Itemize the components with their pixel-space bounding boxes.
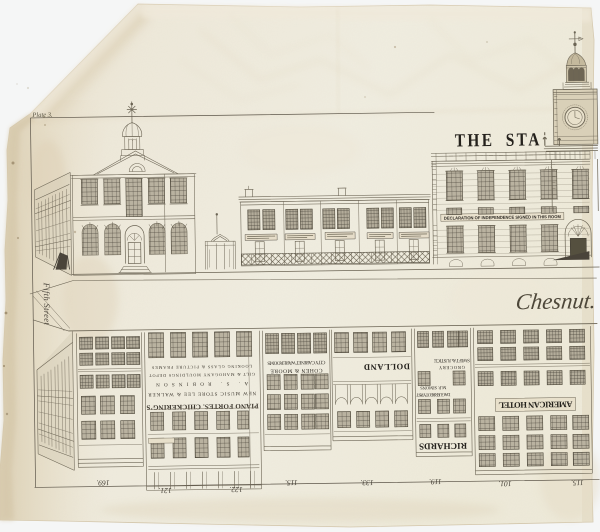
svg-text:DOLLAND: DOLLAND xyxy=(364,362,410,373)
svg-text:169.: 169. xyxy=(96,478,109,487)
svg-text:Chesnut.: Chesnut. xyxy=(515,288,598,314)
svg-text:SWIFT & JUSTICE: SWIFT & JUSTICE xyxy=(434,357,470,363)
svg-text:PIANO FORTES. CHICKERING’S: PIANO FORTES. CHICKERING’S xyxy=(146,402,258,412)
svg-text:RICHARDS: RICHARDS xyxy=(419,441,467,452)
svg-text:DAGUERREOTYPIST: DAGUERREOTYPIST xyxy=(416,392,450,397)
svg-text:THE STA: THE STA xyxy=(455,130,542,151)
svg-text:119.: 119. xyxy=(429,477,442,486)
svg-text:122.: 122. xyxy=(229,485,242,494)
svg-text:Plate 3.: Plate 3. xyxy=(31,112,53,119)
svg-text:115.: 115. xyxy=(285,478,298,487)
svg-text:GROCERY: GROCERY xyxy=(438,365,465,370)
svg-text:AMERICAN HOTEL: AMERICAN HOTEL xyxy=(498,399,572,410)
svg-text:133.: 133. xyxy=(360,478,373,487)
svg-text:115.: 115. xyxy=(571,478,584,487)
svg-text:101.: 101. xyxy=(498,479,511,488)
svg-text:CITY CABINET WAREROOMS: CITY CABINET WAREROOMS xyxy=(267,359,325,365)
svg-text:M.P. SIMONS: M.P. SIMONS xyxy=(420,385,447,390)
svg-text:COHEN & MOORE: COHEN & MOORE xyxy=(270,367,323,374)
svg-text:121.: 121. xyxy=(158,486,171,495)
svg-text:Fifth Street: Fifth Street xyxy=(42,282,53,326)
